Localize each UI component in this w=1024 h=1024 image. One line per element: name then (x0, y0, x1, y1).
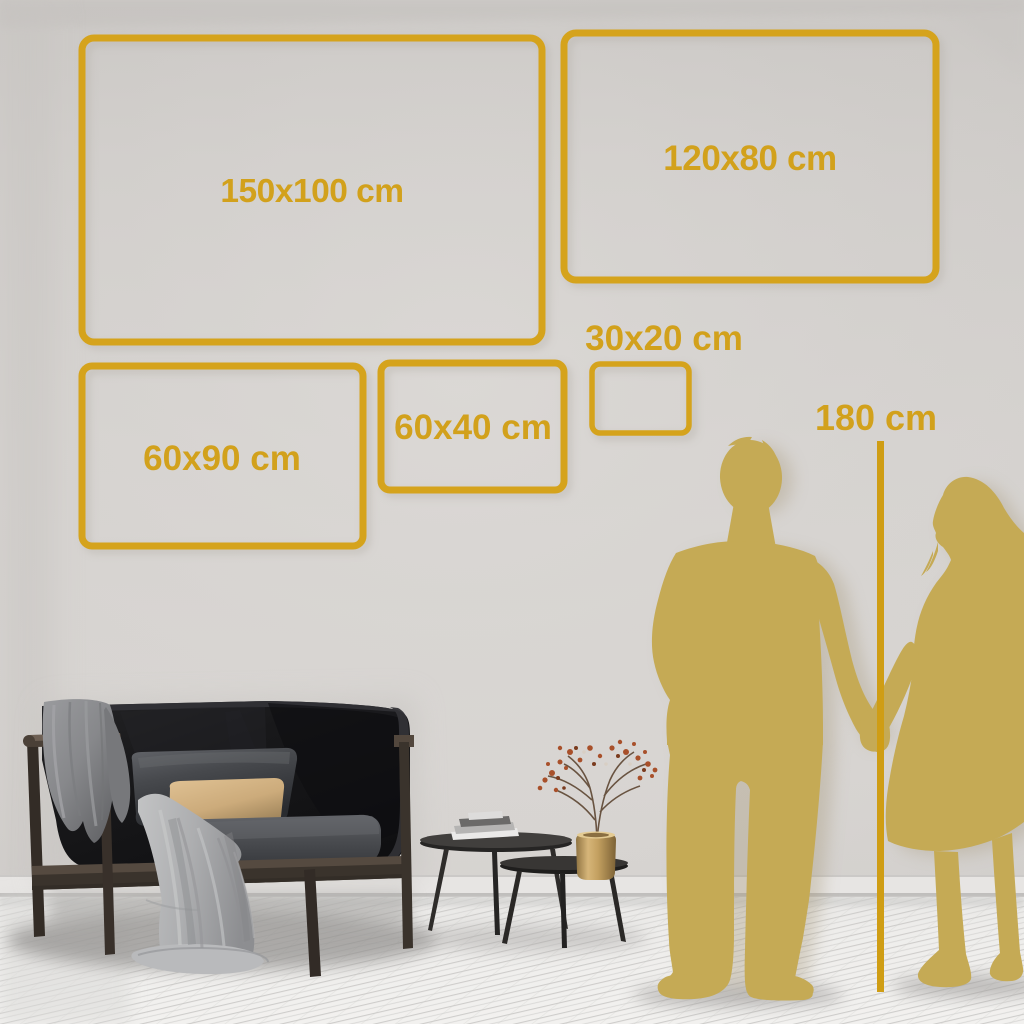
svg-text:120x80 cm: 120x80 cm (663, 139, 837, 178)
svg-text:150x100 cm: 150x100 cm (220, 173, 403, 210)
svg-text:30x20 cm: 30x20 cm (585, 319, 743, 358)
svg-text:180 cm: 180 cm (815, 397, 937, 438)
svg-text:60x90 cm: 60x90 cm (143, 439, 301, 478)
svg-text:60x40 cm: 60x40 cm (394, 408, 552, 447)
